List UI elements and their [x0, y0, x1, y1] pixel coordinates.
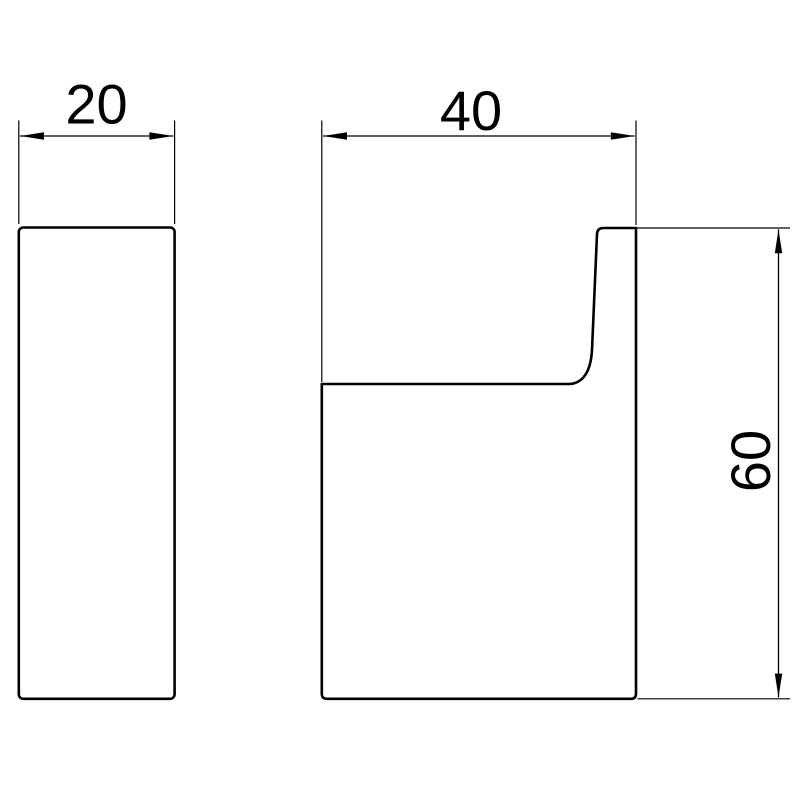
arrowhead-60-bottom-icon [775, 674, 782, 698]
drawing-canvas: 20 40 60 [0, 0, 800, 800]
technical-drawing: 20 40 60 [0, 0, 800, 800]
arrowhead-40-right-icon [611, 132, 635, 139]
dimension-label-side-width: 20 [65, 73, 127, 136]
dimension-label-front-width: 40 [440, 79, 502, 142]
dimension-label-front-height: 60 [719, 430, 782, 492]
side-view-outline [19, 228, 175, 699]
arrowhead-40-left-icon [323, 132, 347, 139]
arrowhead-60-top-icon [775, 229, 782, 253]
arrowhead-20-left-icon [20, 132, 44, 139]
arrowhead-20-right-icon [149, 132, 173, 139]
front-view-outline [322, 228, 636, 699]
